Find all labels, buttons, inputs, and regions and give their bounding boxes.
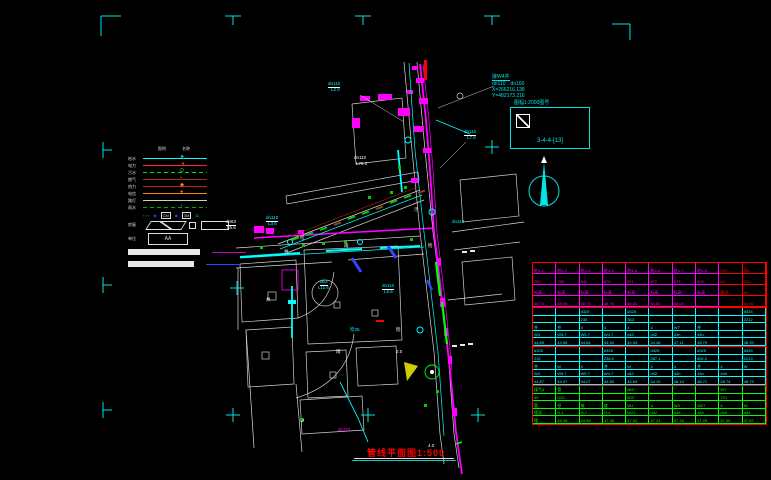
legend-line-sample: ●: [143, 193, 207, 194]
map-label: 检: [300, 236, 305, 241]
table-cell: 48.74: [719, 377, 742, 385]
table-cell: [580, 394, 603, 402]
table-group: 煤气4管d63W745D20502721管径坡度W14W0W274W埋深H-1H…: [533, 385, 766, 424]
legend-row-label: 电力: [128, 163, 143, 169]
legend-row: 电信●: [128, 190, 262, 197]
legend-line-sample: +: [143, 207, 207, 208]
table-cell: [626, 355, 649, 363]
table-cell: 44.47: [556, 377, 579, 385]
map-label: L7.0: [467, 136, 476, 141]
legend-header-symbol: 图例: [158, 146, 166, 152]
table-cell: 井: [696, 362, 719, 370]
cad-drawing-canvas[interactable]: dn110L2.0dn110L7.0dn110L79.0dn63L5.6dn11…: [0, 0, 771, 480]
table-cell: 48.45: [556, 416, 579, 424]
table-cell: 852.2: [696, 355, 719, 363]
table-cell: 2212: [743, 316, 766, 324]
table-cell: 48.63: [556, 296, 579, 307]
legend-line-sample: ◄: [143, 165, 207, 166]
legend-marker-icon: ▪: [180, 176, 182, 181]
table-cell: 84: [719, 274, 742, 285]
table-cell: 363: [626, 316, 649, 324]
table-cell: d42: [649, 370, 672, 378]
house-parallelogram-symbol: [145, 221, 187, 230]
table-cell: 埋: [533, 416, 556, 424]
table-cell: [603, 308, 626, 316]
table-cell: 井: [603, 362, 626, 370]
table-cell: 井: [533, 362, 556, 370]
legend-line-sample: ◆: [143, 186, 207, 187]
table-cell: [673, 347, 696, 355]
table-cell: 48.79: [743, 377, 766, 385]
table-cell: 标高: [673, 285, 696, 296]
table-cell: 48.81: [626, 296, 649, 307]
table-cell: [673, 308, 696, 316]
scale-bar: [128, 249, 200, 255]
table-cell: [719, 296, 742, 307]
table-cell: 44.07: [580, 377, 603, 385]
table-cell: 48.76: [603, 296, 626, 307]
legend-scale-bars: [128, 246, 262, 270]
map-label: 检25: [350, 328, 360, 333]
table-cell: 44.82: [649, 296, 672, 307]
legend-marker-icon: +: [180, 204, 183, 209]
table-cell: [719, 308, 742, 316]
scale-line: [212, 252, 246, 253]
table-cell: [649, 386, 672, 394]
table-cell: 标高: [649, 285, 672, 296]
map-label: dn110: [338, 428, 350, 433]
table-cell: 4: [626, 323, 649, 331]
unit-box: AA: [148, 233, 188, 245]
legend-row: 热力◆: [128, 183, 262, 190]
legend-row: 路灯: [128, 197, 262, 204]
table-cell: 4: [719, 401, 742, 409]
table-cell: 桩4-7: [673, 263, 696, 274]
table-cell: W27: [696, 401, 719, 409]
map-label: L5.6: [384, 290, 393, 295]
table-cell: [743, 370, 766, 378]
table-cell: [719, 323, 742, 331]
table-cell: H-1: [580, 409, 603, 417]
manhole-coordinate-annotation: 接W4井dn110→dn160X=266216.138Y=482173.216: [492, 74, 525, 99]
table-cell: [603, 386, 626, 394]
table-cell: 64: [743, 285, 766, 296]
table-cell: d63: [626, 386, 649, 394]
table-cell: d44: [696, 409, 719, 417]
table-cell: 4: [719, 362, 742, 370]
map-label: 雨: [344, 244, 349, 249]
table-cell: 桩4-4: [603, 263, 626, 274]
table-cell: W: [743, 401, 766, 409]
table-cell: W4.7: [603, 331, 626, 339]
table-cell: [743, 331, 766, 339]
table-cell: 48.71: [696, 377, 719, 385]
legend-row: 燃气▪: [128, 176, 262, 183]
table-cell: [533, 308, 556, 316]
title-underline-cyan: [352, 460, 456, 461]
north-arrow-icon: [521, 154, 567, 214]
table-cell: [696, 308, 719, 316]
legend-row-label: 雨水: [128, 205, 143, 211]
table-cell: 桩4-3: [580, 263, 603, 274]
table-cell: 4: [649, 362, 672, 370]
table-cell: [556, 347, 579, 355]
legend-house-row: 房屋: [128, 219, 262, 231]
table-cell: [556, 355, 579, 363]
table-cell: W: [556, 362, 579, 370]
hatch-square-icon: [516, 114, 530, 128]
table-cell: 桩4-5: [626, 263, 649, 274]
table-group: 桩4-1桩4-2桩4-3桩4-4桩4-5桩4-6桩4-7桩4-8P62雨1757…: [533, 263, 766, 307]
map-label: 井: [266, 298, 271, 303]
table-cell: d325: [696, 347, 719, 355]
legend-row: 给水➤: [128, 155, 262, 162]
legend-symbol-icon: ▪ ▪ ▪: [143, 213, 149, 218]
table-cell: 44.83: [603, 377, 626, 385]
sheet-index-title: 图幅1:2000图号: [514, 99, 590, 106]
table-cell: 管: [556, 386, 579, 394]
table-cell: 坡: [580, 401, 603, 409]
table-cell: [580, 355, 603, 363]
table-cell: 44.10: [649, 377, 672, 385]
table-cell: 47.87: [743, 416, 766, 424]
table-cell: [719, 316, 742, 324]
table-cell: 井: [696, 323, 719, 331]
table-cell: H-1: [556, 409, 579, 417]
table-cell: 桩4-1: [533, 263, 556, 274]
table-cell: 871: [626, 274, 649, 285]
table-cell: 757: [533, 274, 556, 285]
table-cell: 44n: [696, 331, 719, 339]
table-cell: 211: [743, 274, 766, 285]
legend-marker-icon: ◄: [180, 162, 185, 167]
table-cell: 度: [603, 401, 626, 409]
legend-marker-icon: ➤: [180, 155, 184, 160]
table-cell: W5.7: [556, 370, 579, 378]
legend-row: 雨水+: [128, 204, 262, 211]
table-cell: 标高: [580, 285, 603, 296]
table-cell: 44.84: [580, 338, 603, 346]
table-cell: W4: [533, 370, 556, 378]
table-cell: W0: [673, 401, 696, 409]
table-cell: 44n: [673, 331, 696, 339]
table-cell: 管: [533, 401, 556, 409]
table-cell: d325: [626, 308, 649, 316]
table-cell: 桩4-2: [556, 263, 579, 274]
table-cell: 44.85: [533, 338, 556, 346]
scale-line: [206, 264, 240, 265]
legend-row: 电力◄: [128, 162, 262, 169]
map-label: 检: [428, 244, 433, 249]
table-cell: 842: [580, 274, 603, 285]
legend-line-sample: Ω: [143, 172, 207, 173]
table-cell: 44.48: [649, 338, 672, 346]
table-cell: [649, 316, 672, 324]
table-group: d325d325d3252343632212井井4444W7井W4W5.7W5.…: [533, 307, 766, 346]
title-underline-white: [354, 458, 454, 459]
legend-symbol-icon: ◆: [153, 213, 156, 218]
house-label: 房屋: [128, 222, 143, 228]
table-cell: d325: [603, 347, 626, 355]
legend-unit-row: 单位 AA: [128, 231, 262, 246]
table-cell: 44n: [673, 370, 696, 378]
table-cell: W5.7: [556, 331, 579, 339]
table-cell: 桩4-6: [649, 263, 672, 274]
table-cell: 径: [556, 401, 579, 409]
legend-row-label: 电信: [128, 191, 143, 197]
table-cell: d42: [649, 331, 672, 339]
table-cell: d42: [626, 370, 649, 378]
table-cell: d42: [649, 409, 672, 417]
table-cell: W21: [626, 409, 649, 417]
table-cell: [649, 308, 672, 316]
map-label: L2.0: [331, 88, 340, 93]
table-cell: 502: [626, 394, 649, 402]
legend-symbols-row: ▪ ▪ ▪◆CM◆3MΩ: [143, 211, 262, 219]
table-cell: W5.7: [580, 370, 603, 378]
table-cell: W: [743, 362, 766, 370]
table-cell: 4: [673, 362, 696, 370]
table-cell: 44.98: [580, 416, 603, 424]
table-cell: 4: [649, 323, 672, 331]
table-cell: 47.34: [673, 416, 696, 424]
table-cell: 43.04: [673, 296, 696, 307]
table-cell: 标高: [603, 285, 626, 296]
table-cell: 47.02: [626, 416, 649, 424]
pipeline-data-table: 桩4-1桩4-2桩4-3桩4-4桩4-5桩4-6桩4-7桩4-8P62雨1757…: [532, 262, 767, 425]
table-cell: [696, 386, 719, 394]
sheet-index-frame: 3-4-4-[13]: [510, 107, 590, 149]
legend-header-name: 名称: [182, 146, 190, 152]
table-cell: [719, 347, 742, 355]
table-cell: 387.1: [649, 355, 672, 363]
table-cell: [673, 386, 696, 394]
legend-line-sample: [143, 200, 207, 201]
scale-bar-row: [128, 258, 262, 270]
table-cell: W4.7: [603, 370, 626, 378]
table-cell: [743, 394, 766, 402]
legend-symbol-icon: 3M: [182, 212, 192, 219]
table-cell: 48.39: [743, 338, 766, 346]
table-cell: 238.0: [603, 355, 626, 363]
table-cell: d325: [649, 347, 672, 355]
table-cell: 44.94: [603, 338, 626, 346]
table-cell: 44.63: [626, 377, 649, 385]
table-cell: 44n: [696, 370, 719, 378]
table-cell: 48.73: [580, 296, 603, 307]
table-cell: 标高: [696, 285, 719, 296]
table-cell: [696, 316, 719, 324]
table-cell: 标高: [533, 285, 556, 296]
legend-symbol-icon: Ω: [195, 213, 198, 218]
table-group: d325d325d325d325d325232238.0387.1852.222…: [533, 346, 766, 385]
sheet-index-box: 图幅1:2000图号 3-4-4-[13]: [510, 99, 590, 149]
table-cell: 44.55: [556, 338, 579, 346]
table-cell: 874: [696, 274, 719, 285]
table-cell: 井: [556, 323, 579, 331]
legend-symbol-icon: CM: [161, 212, 171, 219]
table-cell: [556, 316, 579, 324]
unit-label: 单位: [128, 236, 143, 242]
table-cell: 44.94: [626, 338, 649, 346]
table-cell: [603, 394, 626, 402]
scale-bar: [128, 261, 194, 267]
table-cell: 4: [580, 323, 603, 331]
table-cell: [649, 394, 672, 402]
map-label: 污: [414, 208, 419, 213]
table-cell: d325: [743, 308, 766, 316]
sheet-index-ref: 3-4-4-[13]: [511, 138, 589, 144]
legend-panel: 图例 名称 给水➤电力◄污水Ω燃气▪热力◆电信●路灯雨水+ ▪ ▪ ▪◆CM◆3…: [128, 146, 262, 270]
legend-row-label: 燃气: [128, 177, 143, 183]
table-cell: [533, 316, 556, 324]
table-cell: [580, 386, 603, 394]
legend-marker-icon: ●: [180, 190, 183, 195]
table-cell: 44.87: [533, 377, 556, 385]
map-label: dn110: [452, 220, 464, 225]
table-cell: 45: [533, 394, 556, 402]
table-cell: 232: [533, 355, 556, 363]
legend-marker-icon: ◆: [180, 183, 184, 188]
legend-row-label: 热力: [128, 184, 143, 190]
map-label: L79.0: [356, 162, 367, 167]
table-cell: W5.7: [580, 331, 603, 339]
table-cell: 井: [533, 323, 556, 331]
table-cell: [673, 316, 696, 324]
table-cell: d325: [580, 308, 603, 316]
table-cell: 872: [649, 274, 672, 285]
table-cell: 234: [580, 316, 603, 324]
table-cell: 47.29: [696, 416, 719, 424]
legend-marker-icon: Ω: [180, 169, 184, 174]
table-cell: 47.28: [603, 416, 626, 424]
table-cell: 44n: [719, 370, 742, 378]
table-cell: P62: [719, 263, 742, 274]
table-cell: [673, 355, 696, 363]
table-cell: [626, 347, 649, 355]
map-label: 井: [284, 250, 289, 255]
table-cell: 870: [603, 274, 626, 285]
table-cell: 雨1: [743, 263, 766, 274]
table-cell: 标高: [556, 285, 579, 296]
table-cell: [743, 323, 766, 331]
map-label: dn110: [354, 156, 366, 161]
table-cell: d42: [626, 331, 649, 339]
map-label: L11.6: [318, 286, 329, 291]
map-label: 检: [396, 328, 401, 333]
table-cell: [696, 296, 719, 307]
table-cell: 标高: [626, 285, 649, 296]
table-cell: [696, 394, 719, 402]
table-cell: 873: [673, 274, 696, 285]
legend-row-label: 污水: [128, 170, 143, 176]
table-cell: W1: [626, 401, 649, 409]
table-cell: 4: [603, 323, 626, 331]
table-cell: 47.49: [719, 416, 742, 424]
table-cell: [556, 308, 579, 316]
legend-line-rows: 给水➤电力◄污水Ω燃气▪热力◆电信●路灯雨水+: [128, 155, 262, 211]
table-cell: d325: [743, 347, 766, 355]
table-cell: 管径: [719, 285, 742, 296]
table-cell: [580, 347, 603, 355]
table-cell: W: [626, 362, 649, 370]
table-cell: d44: [719, 409, 742, 417]
table-cell: 埋深: [533, 409, 556, 417]
table-cell: [719, 331, 742, 339]
table-cell: 47.11: [673, 338, 696, 346]
table-cell: 4: [649, 401, 672, 409]
table-cell: D20: [556, 394, 579, 402]
coordinate-text: 接W4井: [492, 74, 510, 81]
legend-row-label: 给水: [128, 156, 143, 162]
table-cell: 721: [719, 394, 742, 402]
table-cell: 44.60: [743, 296, 766, 307]
table-cell: 47.24: [649, 416, 672, 424]
table-cell: [719, 355, 742, 363]
table-cell: [743, 386, 766, 394]
table-cell: 4: [580, 362, 603, 370]
house-square-symbol: [189, 222, 196, 229]
table-cell: 765: [556, 274, 579, 285]
table-cell: W7: [719, 386, 742, 394]
table-cell: [603, 316, 626, 324]
legend-row: 污水Ω: [128, 169, 262, 176]
table-cell: W4: [533, 331, 556, 339]
table-cell: 48.10: [673, 377, 696, 385]
house-rect-symbol: [201, 221, 229, 230]
table-cell: 桩4-8: [696, 263, 719, 274]
map-label: 雨: [336, 350, 341, 355]
table-cell: H-4: [603, 409, 626, 417]
table-cell: [719, 338, 742, 346]
legend-symbol-icon: ◆: [175, 213, 178, 218]
table-cell: d44: [743, 409, 766, 417]
scale-bar-row: [128, 246, 262, 258]
table-cell: 48.74: [533, 296, 556, 307]
legend-row-label: 路灯: [128, 198, 143, 204]
table-cell: [673, 394, 696, 402]
map-label: 2.0: [396, 350, 402, 355]
map-label: L3.6: [268, 222, 277, 227]
table-cell: W7: [673, 323, 696, 331]
table-cell: d48: [673, 409, 696, 417]
table-cell: 煤气4: [533, 386, 556, 394]
table-cell: 48.79: [696, 338, 719, 346]
table-cell: d325: [533, 347, 556, 355]
legend-line-sample: ▪: [143, 179, 207, 180]
legend-header: 图例 名称: [158, 146, 262, 152]
table-cell: 2213: [743, 355, 766, 363]
legend-line-sample: ➤: [143, 158, 207, 159]
